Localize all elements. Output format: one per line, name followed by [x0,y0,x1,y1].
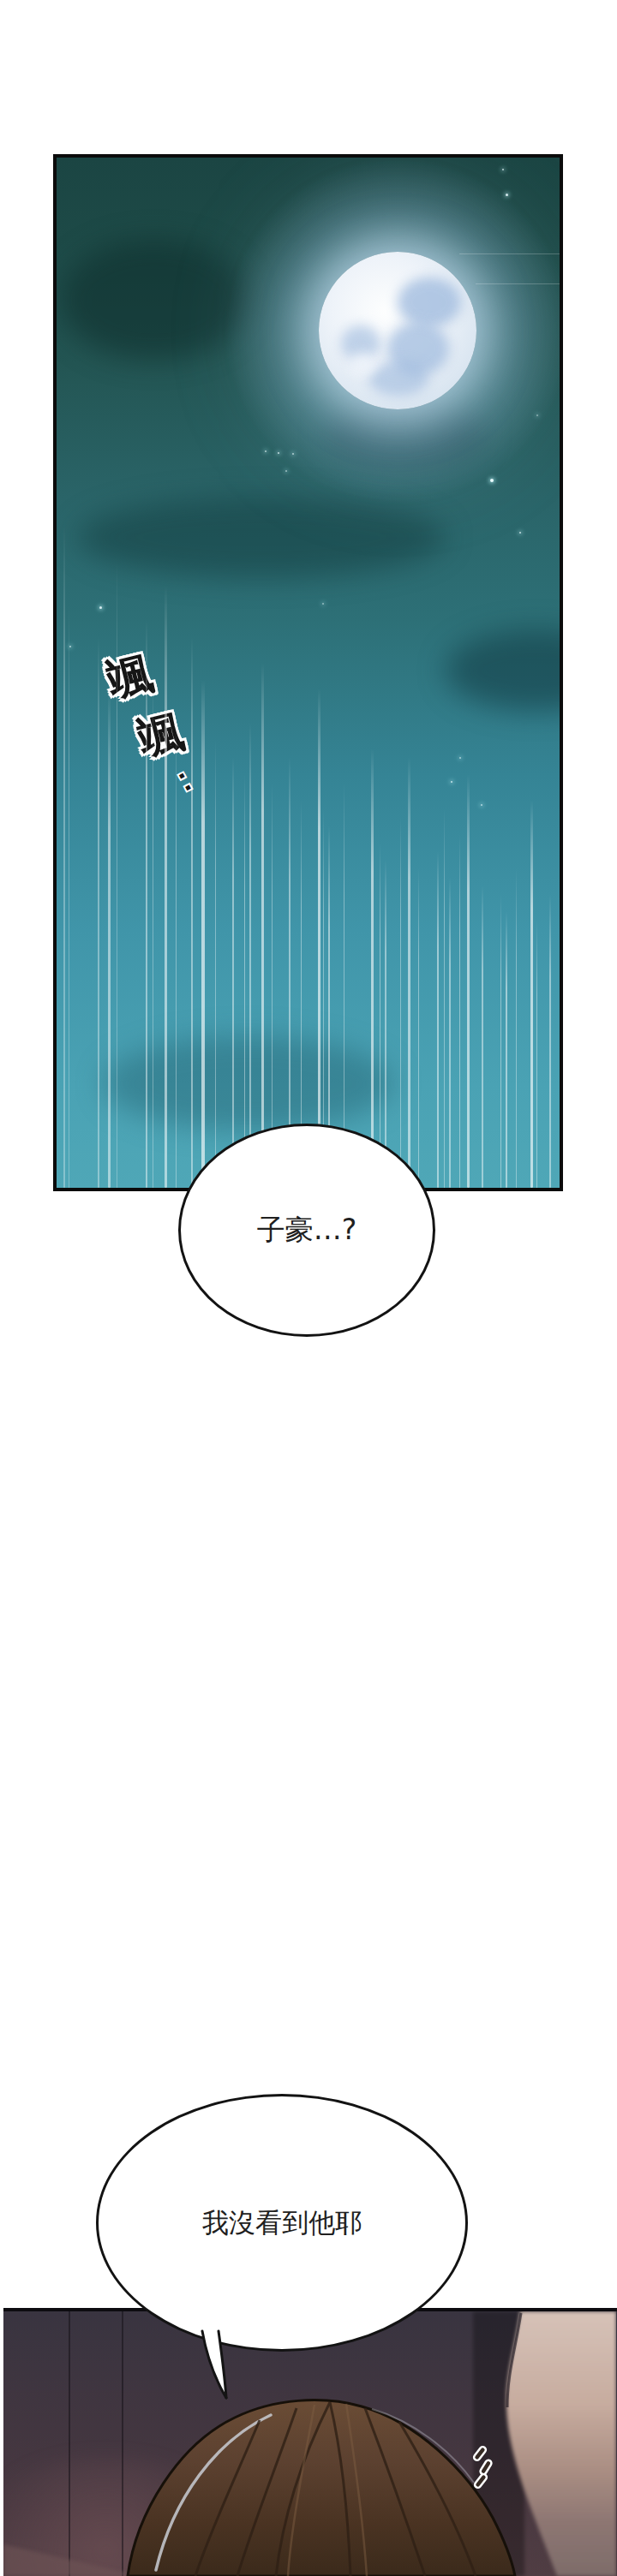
star [285,470,287,472]
light-streak [371,748,374,1188]
star [481,804,482,806]
light-streak [536,920,537,1188]
star [490,479,494,482]
star [502,169,504,170]
light-streak [380,843,380,1188]
star [519,532,521,534]
sfx-wind-char-1: 颯 [103,649,157,703]
light-streak [232,757,234,1188]
light-streak [500,894,501,1188]
moonlight-streak [476,283,560,284]
light-streak [261,663,264,1188]
star [322,603,324,605]
light-streak [244,774,245,1188]
light-streak [408,757,410,1188]
room-artwork [3,2311,616,2576]
light-streak [165,586,167,1188]
light-streak [418,868,419,1188]
star [69,646,71,647]
light-streak [444,808,445,1188]
star [265,450,267,452]
light-streak [482,885,483,1188]
night-sky-panel: 颯 颯 ·· [53,154,563,1191]
light-streak [400,817,401,1188]
light-streak [344,783,344,1188]
star [292,453,294,455]
light-streak [437,851,439,1188]
light-streak [146,620,147,1188]
moon-crater-light [350,353,377,375]
light-streak [98,637,99,1188]
star [536,414,538,416]
light-streak [176,714,177,1188]
light-streak [191,637,193,1188]
light-streak [63,526,65,1188]
speech-bubble-2: 我沒看到他耶 [96,2094,468,2352]
light-streak [530,800,533,1188]
light-streak [385,860,386,1188]
light-streak [215,740,216,1188]
light-streak [289,757,291,1188]
moonlight-streak [459,253,560,254]
light-streak [549,894,551,1188]
floor-highlight [3,2544,141,2576]
person-head-hair [128,2400,515,2576]
star [278,452,279,454]
cloud-wisp [446,629,563,711]
sfx-wind-char-2: 颯 [134,707,188,761]
star [99,606,102,609]
light-streak [108,689,111,1188]
light-streak [449,877,451,1188]
light-streak [318,689,320,1188]
star [506,194,508,196]
light-streak [153,671,153,1188]
star [459,757,461,759]
star [451,781,452,783]
moon-mare [398,277,461,327]
speech-bubble-1-text: 子豪…? [257,1211,357,1249]
light-streak [117,560,117,1188]
light-streak [459,834,460,1188]
light-streak [516,868,517,1188]
comic-page: 颯 颯 ·· 子豪…? [0,0,617,2576]
light-streak [201,680,205,1188]
speech-bubble-2-tail [193,2323,244,2404]
light-streak [467,774,470,1188]
moon-mare [368,361,428,396]
light-streak [69,603,69,1188]
light-streak [560,860,561,1188]
moon [319,252,476,409]
speech-bubble-2-text: 我沒看到他耶 [202,2205,362,2241]
light-streak [249,723,251,1188]
light-streak [506,911,507,1188]
speech-bubble-1: 子豪…? [178,1124,435,1337]
